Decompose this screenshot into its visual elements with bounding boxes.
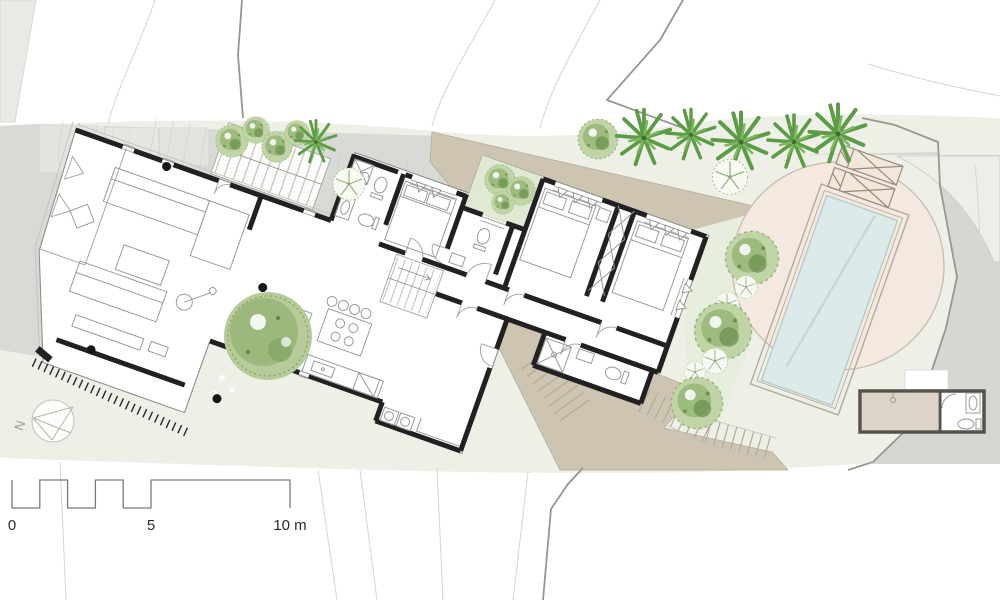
shrub-icon [695,303,752,360]
sparse-tree-icon [333,168,365,200]
road-wedge [0,0,36,122]
house-footprint [0,24,709,557]
round-tree-icon [578,119,618,159]
shrub-icon [702,348,728,374]
scale-label-5: 5 [147,517,155,534]
sparse-tree-icon [712,159,747,194]
scale-label-0: 0 [8,517,16,534]
site-plan-drawing: N 0 5 10 m [0,0,1000,600]
scale-bar: 0 5 10 m [8,480,307,534]
courtyard-tree-icon [492,192,515,215]
scale-label-10: 10 m [273,517,306,534]
shrub-icon [735,276,757,298]
shrub-icon [671,377,722,428]
house-group [0,0,924,600]
shrub-icon [725,231,778,284]
site-plan-page: N 0 5 10 m [0,0,1000,600]
